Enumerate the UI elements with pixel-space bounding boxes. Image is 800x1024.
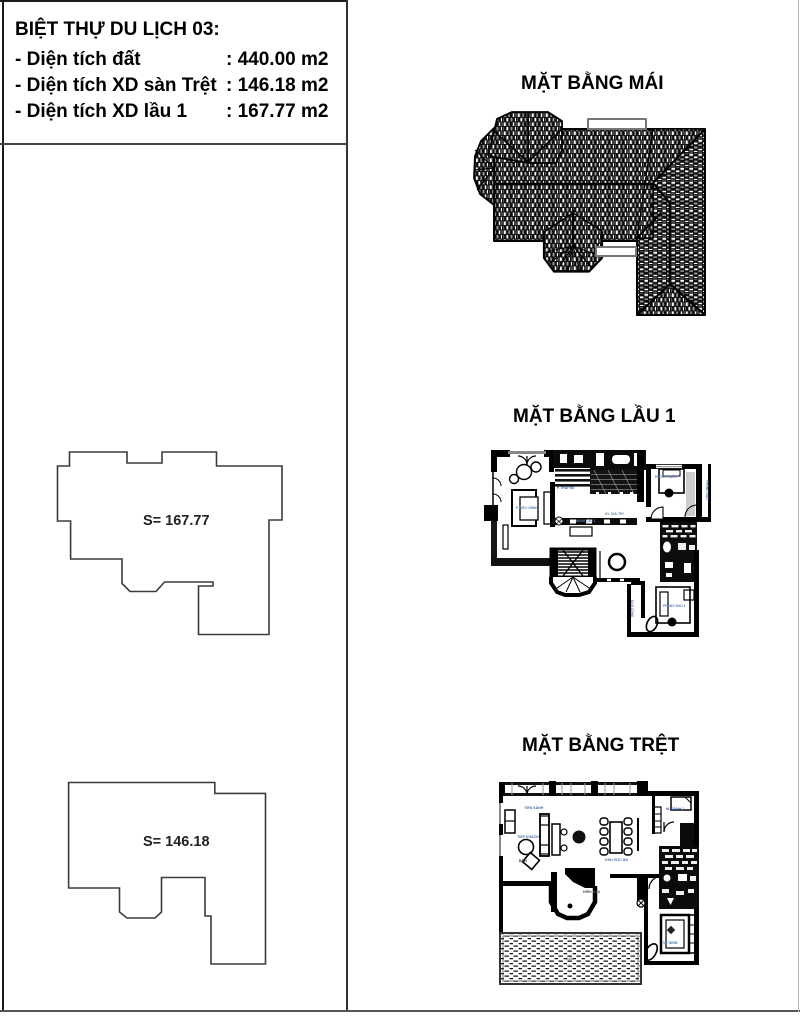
svg-text:S= 146.18: S= 146.18 xyxy=(143,834,210,850)
svg-text:PHÒNG GIẶT: PHÒNG GIẶT xyxy=(705,480,710,500)
svg-text:KV. GIẢI TRÍ: KV. GIẢI TRÍ xyxy=(605,511,624,516)
svg-text:SÂN: SÂN xyxy=(566,956,574,961)
svg-text:PHÒNG NGỦ 2: PHÒNG NGỦ 2 xyxy=(655,474,678,479)
svg-text:KHU VỰC ĂN: KHU VỰC ĂN xyxy=(605,857,628,862)
svg-text:P. NGỦ CHÍNH: P. NGỦ CHÍNH xyxy=(516,505,538,510)
svg-text:BAN CÔNG: BAN CÔNG xyxy=(630,600,635,618)
svg-text:TIỀN SẢNH: TIỀN SẢNH xyxy=(524,805,544,810)
svg-text:HIÊN SAU: HIÊN SAU xyxy=(583,889,601,894)
svg-text:BẰNG LẦU 1: BẰNG LẦU 1 xyxy=(576,518,596,523)
svg-text:VỆ SINH: VỆ SINH xyxy=(663,940,678,945)
svg-text:BÀN: BÀN xyxy=(519,858,527,863)
svg-text:M. SẢNH 1: M. SẢNH 1 xyxy=(666,806,684,811)
svg-text:TIẾP KHÁCH: TIẾP KHÁCH xyxy=(517,834,539,839)
svg-text:PHÒNG NGỦ 3: PHÒNG NGỦ 3 xyxy=(663,603,686,608)
svg-text:S= 167.77: S= 167.77 xyxy=(143,513,210,529)
svg-text:P. THAY ĐỒ: P. THAY ĐỒ xyxy=(557,485,575,490)
